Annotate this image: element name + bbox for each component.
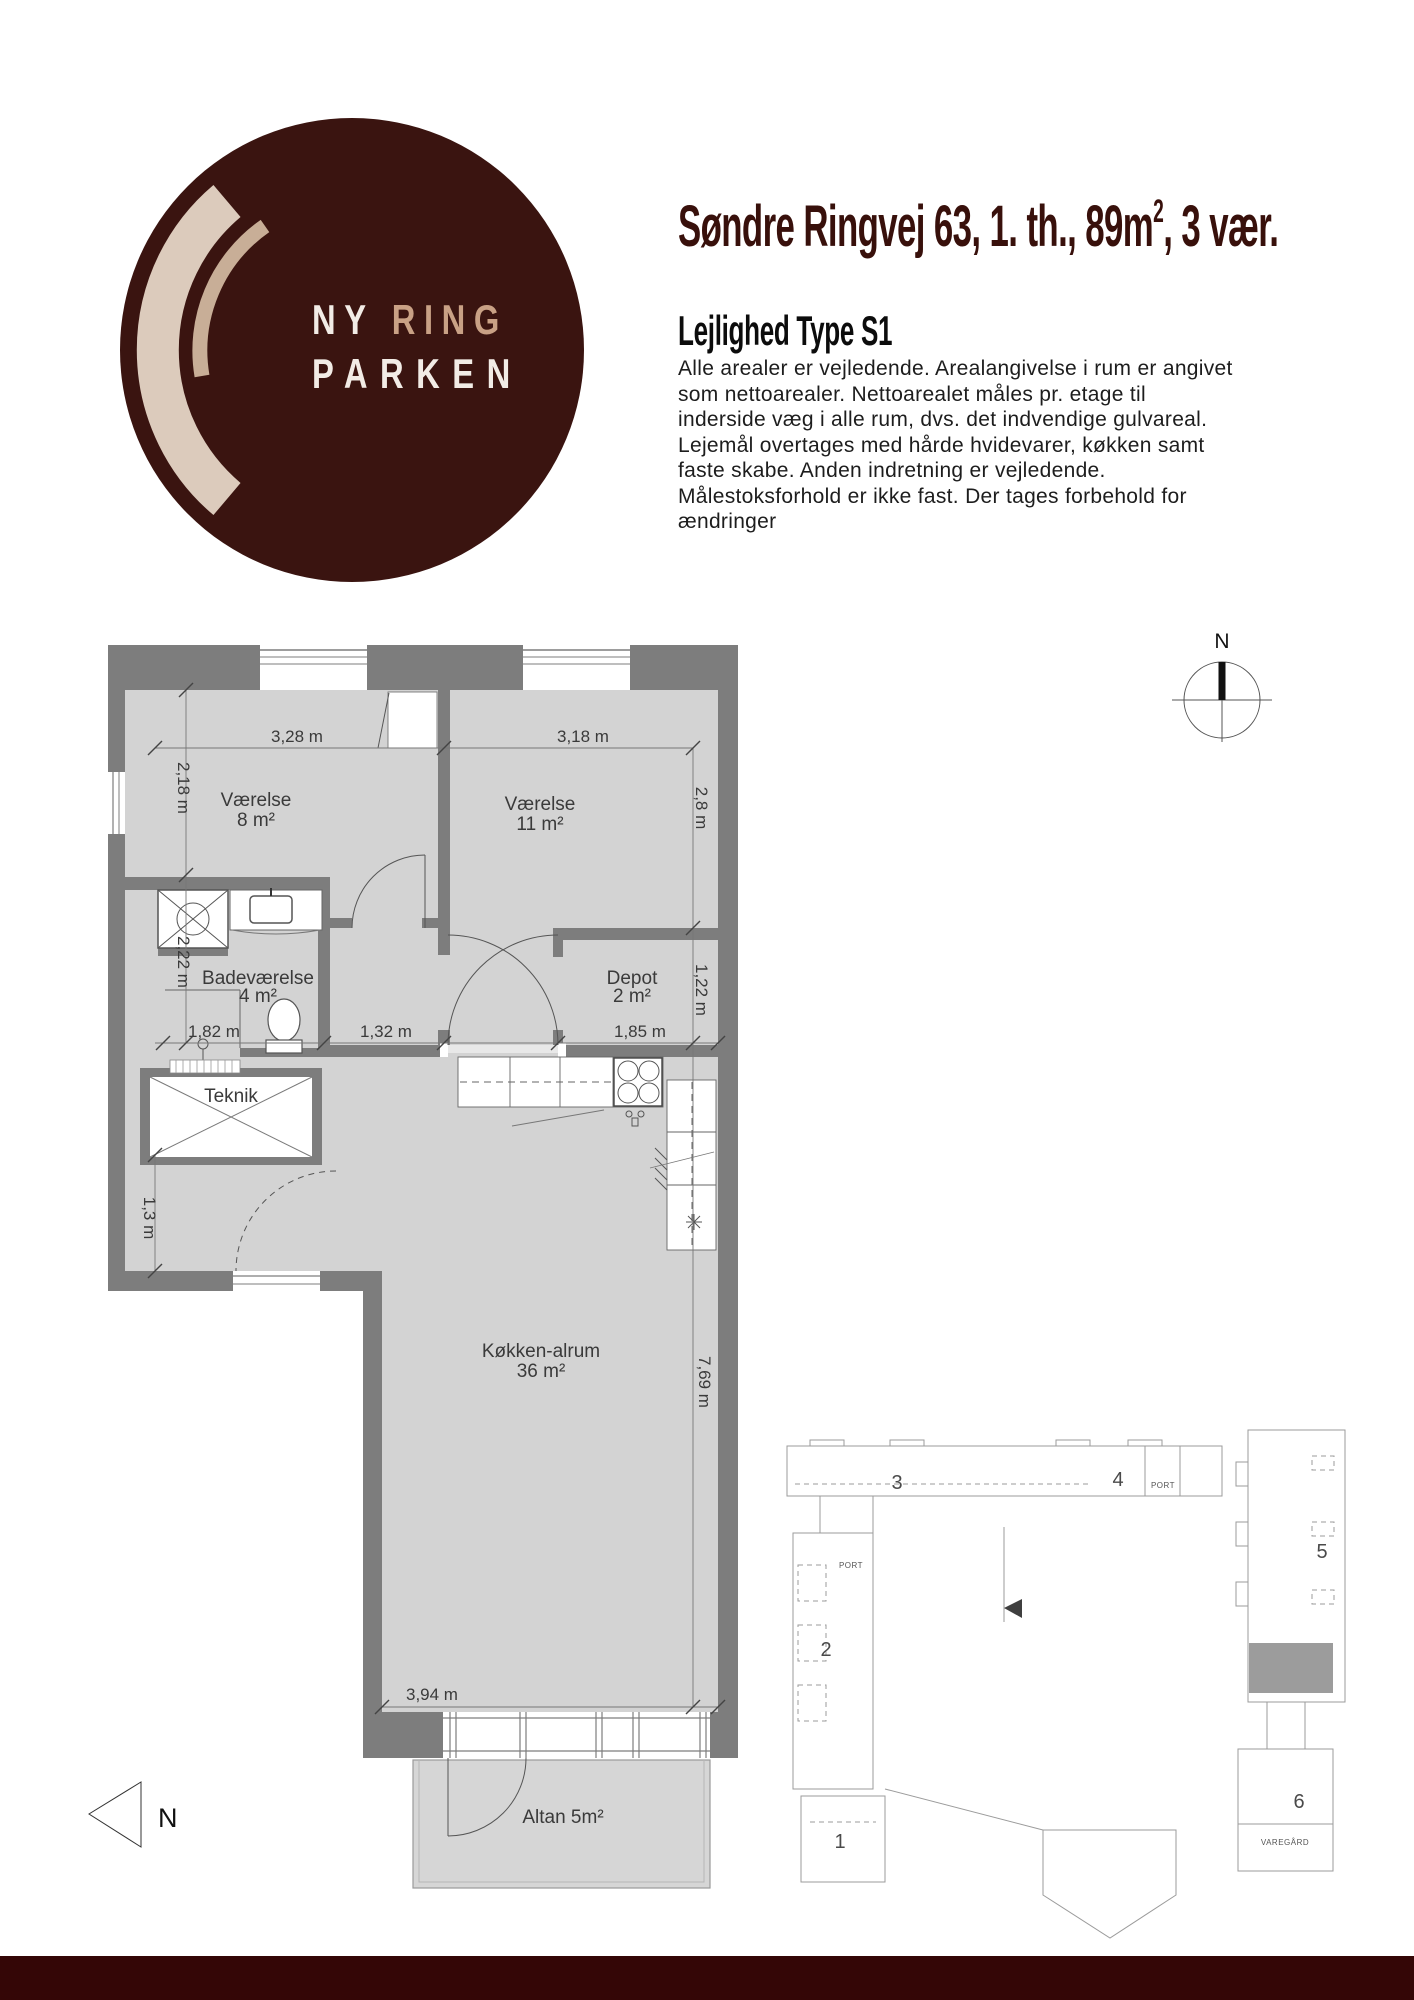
dim-living-width: 3,94 m (406, 1685, 458, 1704)
living-room-label: Køkken-alrum (482, 1341, 600, 1362)
title-pre: Søndre Ringvej 63, 1. th., 89m (678, 194, 1153, 259)
north-arrow-graphic: N (70, 1770, 200, 1860)
apartment-type-subtitle: Lejlighed Type S1 (678, 307, 892, 355)
paragraph-line: Målestoksforhold er ikke fast. Der tages… (678, 484, 1233, 510)
building-5-number: 5 (1316, 1541, 1327, 1563)
sink-icon (230, 888, 322, 934)
title-superscript: 2 (1153, 193, 1163, 229)
paragraph-line: faste skabe. Anden indretning er vejlede… (678, 458, 1233, 484)
stove-icon (614, 1058, 662, 1106)
dim-room1-width: 3,28 m (271, 727, 323, 746)
balcony-door-windows (443, 1712, 710, 1758)
dim-entry-height: 1,3 m (140, 1197, 159, 1240)
logo-graphic: NY RING PARKEN (115, 113, 590, 588)
logo-ny: NY (312, 296, 392, 343)
north-arrow-label: N (158, 1803, 178, 1833)
building-2-number: 2 (820, 1639, 831, 1661)
building-4-number: 4 (1112, 1469, 1123, 1491)
depot-area: 2 m² (613, 986, 651, 1007)
room2-area: 11 m² (516, 814, 563, 835)
building-3-number: 3 (891, 1472, 902, 1494)
varegard-label: VAREGÅRD (1261, 1838, 1309, 1847)
page-title: Søndre Ringvej 63, 1. th., 89m2, 3 vær. (678, 193, 1278, 260)
compass-graphic: N (1160, 620, 1290, 750)
lower-left-window (233, 1271, 320, 1291)
disclaimer-paragraph: Alle arealer er vejledende. Arealangivel… (678, 356, 1233, 535)
dim-room1-height: 2,18 m (174, 762, 193, 814)
dim-depot-width: 1,85 m (614, 1022, 666, 1041)
left-wall-window (108, 772, 125, 834)
room1-label: Værelse (221, 790, 292, 811)
north-triangle-icon (89, 1782, 141, 1847)
balcony-label: Altan 5m² (522, 1807, 603, 1828)
north-arrow: N (70, 1770, 200, 1860)
logo-ring-text: RING (392, 296, 508, 343)
toilet-icon (266, 999, 302, 1053)
floorplan-drawing: 3,28 m 3,18 m 2,18 m 2,8 m 2,22 m 1,22 m… (100, 630, 780, 1910)
room1-area: 8 m² (237, 810, 275, 831)
floorplan: 3,28 m 3,18 m 2,18 m 2,8 m 2,22 m 1,22 m… (100, 630, 780, 1910)
appliance-asterisk-icon (686, 1214, 702, 1230)
paragraph-line: Alle arealer er vejledende. Arealangivel… (678, 356, 1233, 382)
dim-bath-width: 1,82 m (188, 1022, 240, 1041)
port-label-top: PORT (1151, 1481, 1175, 1490)
compass-needle-icon (1219, 662, 1226, 700)
dim-room2-width: 3,18 m (557, 727, 609, 746)
dim-hall-width: 1,32 m (360, 1022, 412, 1041)
port-label-left: PORT (839, 1561, 863, 1570)
dim-living-height: 7,69 m (695, 1356, 714, 1408)
dim-bath-height: 2,22 m (174, 936, 193, 988)
footer-bar (0, 1956, 1414, 2000)
logo: NY RING PARKEN (115, 113, 590, 588)
paragraph-line: Lejemål overtages med hårde hvidevarer, … (678, 433, 1233, 459)
building-6-number: 6 (1293, 1791, 1304, 1813)
building-6 (1238, 1749, 1333, 1871)
siteplan: 1 2 3 4 5 6 PORT PORT VAREGÅRD (780, 1420, 1400, 1950)
siteplan-drawing: 1 2 3 4 5 6 PORT PORT VAREGÅRD (780, 1420, 1400, 1950)
highlight-unit (1249, 1643, 1333, 1693)
room2-label: Værelse (505, 794, 576, 815)
teknik-room (140, 1068, 322, 1165)
compass-north-label: N (1214, 630, 1229, 653)
building-1-number: 1 (834, 1831, 845, 1853)
compass: N (1160, 620, 1290, 750)
paragraph-line: inderside væg i alle rum, dvs. det indve… (678, 407, 1233, 433)
teknik-label: Teknik (204, 1086, 258, 1107)
bathroom-area: 4 m² (239, 986, 277, 1007)
dim-depot-height: 1,22 m (692, 964, 711, 1016)
living-room-area: 36 m² (517, 1361, 566, 1382)
dim-room2-height: 2,8 m (692, 787, 711, 830)
location-marker-icon (1004, 1599, 1022, 1618)
paragraph-line: som nettoarealer. Nettoarealet måles pr.… (678, 382, 1233, 408)
logo-line2: PARKEN (312, 350, 523, 397)
title-post: , 3 vær. (1163, 194, 1278, 259)
apartment-floor (125, 690, 718, 1712)
paragraph-line: ændringer (678, 509, 1233, 535)
logo-line1: NY RING (312, 296, 508, 343)
